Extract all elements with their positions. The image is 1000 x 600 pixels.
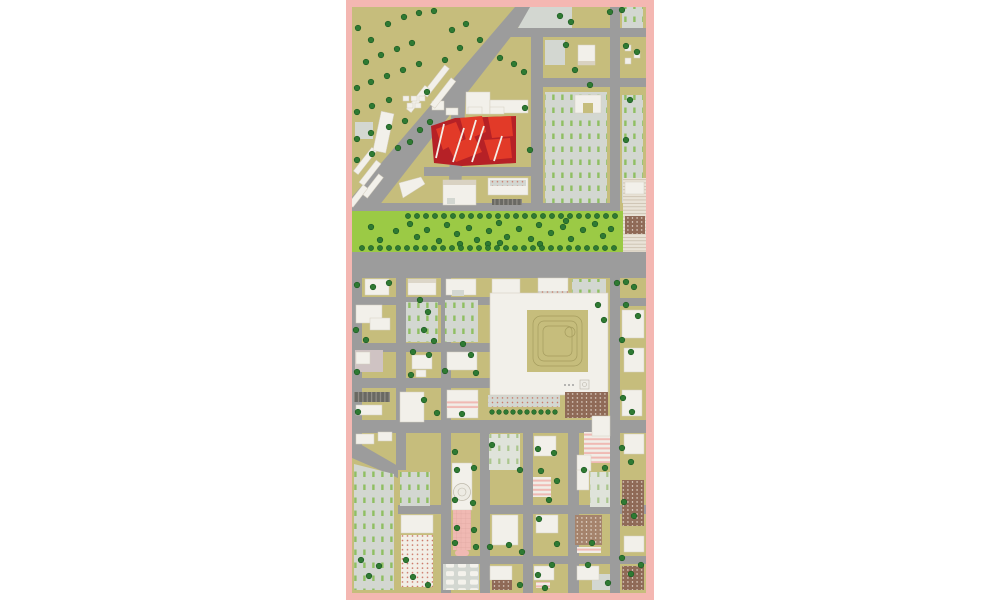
tree-icon [463,21,469,27]
tree-icon [377,237,383,243]
map-content [348,7,646,593]
tree-icon [354,85,360,91]
tree-icon [504,234,510,240]
tree-icon [504,213,509,218]
tree-icon [395,245,400,250]
stadium-superblock [490,293,608,395]
tree-icon [403,557,409,563]
tree-icon [440,245,445,250]
tree-icon [421,327,427,333]
building [624,536,644,552]
brown-grid-structure [492,580,512,590]
tree-icon [358,557,364,563]
tree-icon [494,245,499,250]
tree-icon [528,236,534,242]
courtyard [583,103,593,113]
tree-icon [385,21,391,27]
tree-icon [424,89,430,95]
tree-icon [407,139,413,145]
tree-icon [359,245,364,250]
tree-icon [489,442,495,448]
building [592,416,610,436]
tree-icon [473,370,479,376]
tree-icon [546,497,552,503]
tree-icon [601,317,607,323]
project-site-red-buildings [431,116,516,166]
tree-icon [495,213,500,218]
parking-lot [445,300,478,342]
building [356,434,374,444]
tree-icon [354,136,360,142]
tree-icon [504,410,509,415]
tree-icon [452,540,458,546]
tree-icon [417,297,423,303]
building-shadow [578,61,595,65]
tree-icon [620,395,626,401]
building [415,103,421,108]
tree-icon [548,230,554,236]
tree-icon [442,368,448,374]
tree-icon [368,37,374,43]
tree-icon [368,224,374,230]
street [610,278,620,593]
tree-icon [394,46,400,52]
building [625,58,631,64]
tree-icon [581,467,587,473]
building [403,96,409,101]
street [352,378,490,388]
tree-icon [393,228,399,234]
parking-lot [622,7,643,28]
tree-icon [354,282,360,288]
tree-icon [424,227,430,233]
tree-icon [468,352,474,358]
tree-icon [384,73,390,79]
tree-icon [592,221,598,227]
tree-icon [400,67,406,73]
tree-icon [404,245,409,250]
tree-icon [474,237,480,243]
building [365,279,389,295]
tree-icon [496,220,502,226]
tree-icon [600,233,606,239]
pink-striped-roof [447,400,478,409]
tree-icon [363,337,369,343]
paved-lot [447,198,455,204]
tree-icon [538,468,544,474]
tree-icon [638,562,644,568]
tree-icon [444,222,450,228]
tree-icon [454,231,460,237]
tree-icon [459,411,465,417]
tree-icon [619,555,625,561]
building [370,318,390,330]
tree-icon [575,245,580,250]
tree-icon [593,245,598,250]
tree-icon [422,245,427,250]
tree-icon [513,213,518,218]
tree-icon [423,213,428,218]
tree-icon [370,284,376,290]
tree-icon [410,349,416,355]
building [490,107,504,114]
brown-grid-structure [575,515,602,545]
tree-icon [634,49,640,55]
pink-striped-roof [533,477,551,497]
tree-icon [553,410,558,415]
stall-lot [443,564,479,590]
tree-icon [623,302,629,308]
tree-icon [517,467,523,473]
tree-icon [522,105,528,111]
tree-icon [568,19,574,25]
tree-icon [369,151,375,157]
tree-icon [497,55,503,61]
brown-grid-structure [622,566,644,590]
street [424,167,543,176]
street [396,278,406,470]
stadium-courtyard [527,310,588,372]
tree-icon [518,410,523,415]
street [441,556,646,564]
tree-icon [628,349,634,355]
tree-icon [486,213,491,218]
tree-icon [521,245,526,250]
tree-icon [487,544,493,550]
tree-icon [450,213,455,218]
tree-icon [530,245,535,250]
tree-icon [635,313,641,319]
tree-icon [368,79,374,85]
tree-icon [546,410,551,415]
tree-icon [557,13,563,19]
building [490,566,512,580]
tree-icon [611,245,616,250]
tree-icon [468,213,473,218]
tree-icon [452,449,458,455]
tree-icon [432,213,437,218]
tree-icon [580,227,586,233]
parking-lot [400,472,430,506]
tree-icon [355,409,361,415]
tree-icon [512,245,517,250]
tree-icon [568,236,574,242]
tree-icon [589,540,595,546]
building-band [443,180,476,185]
building-band [408,279,436,283]
tree-icon [603,213,608,218]
tree-icon [460,341,466,347]
tree-icon [425,309,431,315]
tree-icon [602,245,607,250]
site-plan-canvas [0,0,1000,600]
tree-icon [354,109,360,115]
brown-grid-structure [565,392,608,418]
tree-icon [517,582,523,588]
tree-icon [471,465,477,471]
tree-icon [572,67,578,73]
building [416,370,426,377]
tree-icon [549,562,555,568]
building [577,470,589,490]
tree-icon [619,7,625,13]
tree-icon [355,25,361,31]
tree-icon [560,224,566,230]
tree-icon [466,225,472,231]
tree-icon [531,213,536,218]
tree-icon [386,124,392,130]
tree-icon [402,118,408,124]
tree-icon [497,410,502,415]
building [378,432,392,441]
dotted-roof [490,180,526,186]
tree-icon [449,27,455,33]
tree-icon [454,467,460,473]
tree-icon [486,228,492,234]
building [492,515,518,545]
tree-icon [623,279,629,285]
tree-icon [608,226,614,232]
tree-icon [563,42,569,48]
building [400,392,424,422]
tree-icon [554,541,560,547]
tree-icon [525,410,530,415]
tree-icon [539,245,544,250]
tree-icon [587,82,593,88]
striped-lot [590,472,610,507]
tree-icon [540,213,545,218]
tree-icon [619,337,625,343]
street [480,432,490,593]
street [352,203,620,211]
building [492,279,520,294]
building [624,434,644,454]
tree-icon [539,410,544,415]
parking-lot [406,302,438,342]
tree-icon [629,409,635,415]
tree-icon [497,240,503,246]
street [543,78,646,87]
tree-icon [605,580,611,586]
tree-icon [516,226,522,232]
tree-icon [353,327,359,333]
tree-icon [549,213,554,218]
tree-icon [585,213,590,218]
building [419,96,425,101]
tree-icon [473,544,479,550]
tree-icon [354,157,360,163]
tree-icon [585,562,591,568]
tree-icon [363,59,369,65]
market-hall [623,178,646,252]
tree-icon [623,43,629,49]
tree-icon [431,245,436,250]
tree-icon [511,410,516,415]
church-apse [455,550,469,556]
canopy [492,199,522,205]
tree-icon [414,234,420,240]
tree-icon [521,69,527,75]
tree-icon [477,37,483,43]
tree-icon [454,525,460,531]
tree-icon [458,245,463,250]
tree-icon [426,352,432,358]
tree-icon [376,563,382,569]
boulevard [352,252,646,278]
tree-icon [532,410,537,415]
tree-icon [628,571,634,577]
site-plan-page [0,0,1000,600]
tree-icon [471,527,477,533]
building [468,107,482,114]
dotted-parking [488,395,560,407]
tree-icon [431,338,437,344]
tree-icon [563,218,569,224]
tree-icon [425,582,431,588]
striped-lot [489,434,520,470]
orchard-block [401,515,433,587]
tree-icon [614,280,620,286]
tree-icon [490,410,495,415]
tree-icon [409,40,415,46]
tree-icon [567,213,572,218]
tree-icon [368,130,374,136]
tree-icon [449,245,454,250]
tree-icon [441,213,446,218]
tree-icon [548,245,553,250]
large-parking-lot [354,464,394,590]
tree-icon [503,245,508,250]
street [398,505,443,514]
tree-icon [436,238,442,244]
tree-icon [366,573,372,579]
tree-icon [566,245,571,250]
tree-icon [386,97,392,103]
tree-icon [619,445,625,451]
tree-icon [457,45,463,51]
tree-icon [408,372,414,378]
tree-icon [477,213,482,218]
building [356,352,370,364]
tree-icon [386,245,391,250]
tree-icon [623,137,629,143]
tree-icon [452,497,458,503]
tree-icon [612,213,617,218]
tree-icon [442,57,448,63]
tree-icon [416,61,422,67]
tree-icon [584,245,589,250]
tree-icon [395,145,401,151]
tree-icon [522,213,527,218]
street [500,28,646,37]
tree-icon [470,500,476,506]
tree-icon [607,9,613,15]
tree-icon [421,397,427,403]
tree-icon [427,119,433,125]
street [531,7,543,211]
tree-icon [535,446,541,452]
tree-icon [557,245,562,250]
tree-icon [621,499,627,505]
tree-icon [431,8,437,14]
building [407,103,413,108]
building [411,96,417,101]
tree-icon [459,213,464,218]
tree-icon [434,410,440,416]
tree-icon [628,459,634,465]
tree-icon [631,284,637,290]
tree-icon [414,213,419,218]
tree-icon [542,585,548,591]
tree-icon [558,213,563,218]
tree-icon [627,97,633,103]
tree-icon [368,245,373,250]
tree-icon [401,14,407,20]
tree-icon [369,103,375,109]
tree-icon [407,221,413,227]
tree-icon [417,127,423,133]
tree-icon [554,478,560,484]
tree-icon [576,213,581,218]
tree-icon [595,302,601,308]
tree-icon [467,245,472,250]
tree-icon [410,574,416,580]
tree-icon [378,52,384,58]
paved-lot [545,40,565,65]
tree-icon [536,222,542,228]
building [446,108,458,115]
tree-icon [386,280,392,286]
canopy [577,547,601,553]
paved-lot [452,290,464,296]
tree-icon [594,213,599,218]
building [622,310,644,338]
tree-icon [354,369,360,375]
tree-icon [519,549,525,555]
tree-icon [602,465,608,471]
tree-icon [416,10,422,16]
tree-icon [536,516,542,522]
tree-icon [511,61,517,67]
tree-icon [405,213,410,218]
tree-icon [535,572,541,578]
tree-icon [631,513,637,519]
tree-icon [506,542,512,548]
canopy [354,392,390,402]
tree-icon [551,450,557,456]
tree-icon [485,245,490,250]
tree-icon [476,245,481,250]
tree-icon [377,245,382,250]
tree-icon [413,245,418,250]
tree-icon [527,147,533,153]
